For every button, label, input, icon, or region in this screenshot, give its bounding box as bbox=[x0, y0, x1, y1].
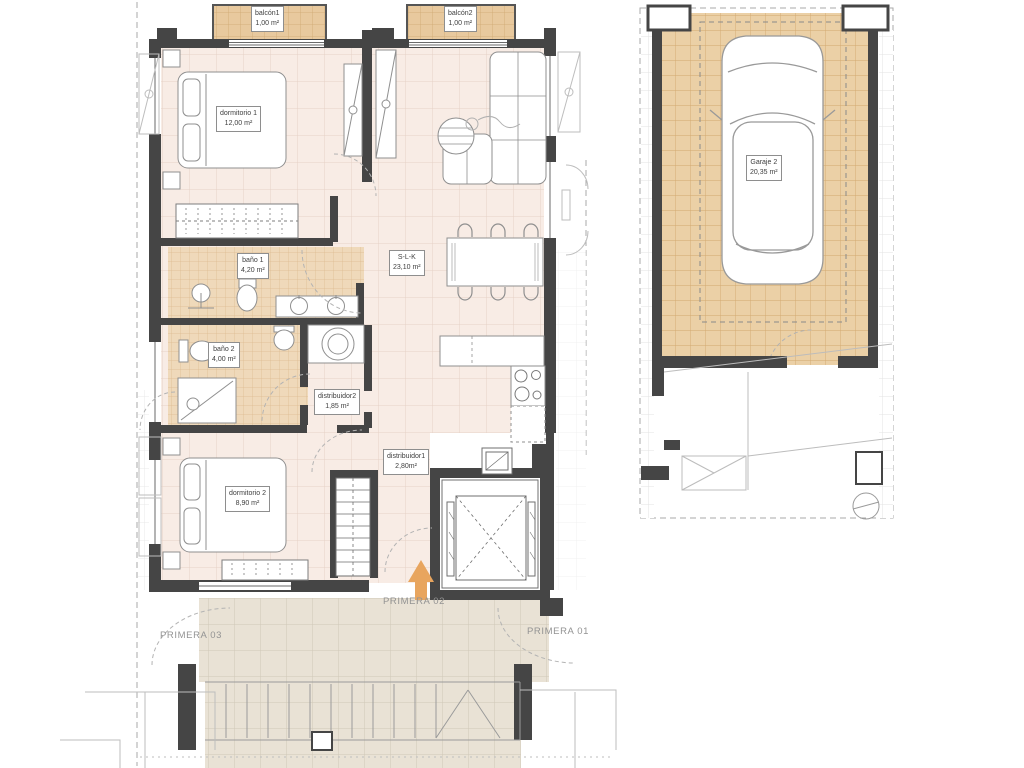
room-name: dormitorio 1 bbox=[220, 109, 257, 119]
room-area: 4,20 m² bbox=[241, 266, 265, 276]
room-name: baño 2 bbox=[212, 345, 236, 355]
room-label-dormitorio2: dormitorio 2 8,90 m² bbox=[225, 486, 270, 512]
room-name: balcón2 bbox=[448, 9, 473, 19]
room-name: baño 1 bbox=[241, 256, 265, 266]
washbasin2-icon bbox=[274, 326, 294, 350]
room-area: 1,00 m² bbox=[448, 19, 473, 29]
shower-icon bbox=[178, 378, 236, 423]
dining-table-icon bbox=[447, 238, 543, 286]
room-label-bano1: baño 1 4,20 m² bbox=[237, 253, 269, 279]
terrace-post bbox=[312, 732, 332, 750]
room-name: dormitorio 2 bbox=[229, 489, 266, 499]
room-label-balcon1: balcón1 1,00 m² bbox=[251, 6, 284, 32]
wardrobe1-icon bbox=[176, 204, 298, 238]
toilet1-icon bbox=[237, 279, 257, 311]
plan-linework bbox=[0, 0, 1024, 768]
room-name: distribuidor2 bbox=[318, 392, 356, 402]
room-name: Garaje 2 bbox=[750, 158, 778, 168]
room-label-distribuidor1: distribuidor1 2,80m² bbox=[383, 449, 429, 475]
room-area: 2,80m² bbox=[387, 462, 425, 472]
terrace-floor bbox=[199, 598, 549, 682]
room-name: balcón1 bbox=[255, 9, 280, 19]
room-label-dormitorio1: dormitorio 1 12,00 m² bbox=[216, 106, 261, 132]
room-label-garaje2: Garaje 2 20,35 m² bbox=[746, 155, 782, 181]
floorplan-sheet: balcón1 1,00 m² balcón2 1,00 m² dormitor… bbox=[0, 0, 1024, 768]
room-area: 1,85 m² bbox=[318, 402, 356, 412]
vanity-sinks-icon bbox=[276, 295, 358, 317]
room-name: distribuidor1 bbox=[387, 452, 425, 462]
washing-machine-icon bbox=[308, 325, 364, 363]
stairs-icon bbox=[336, 478, 370, 576]
room-area: 1,00 m² bbox=[255, 19, 280, 29]
room-label-slk: S-L-K 23,10 m² bbox=[389, 250, 425, 276]
north-circle-icon bbox=[853, 493, 879, 519]
room-label-bano2: baño 2 4,00 m² bbox=[208, 342, 240, 368]
level-label-primera01: PRIMERA 01 bbox=[527, 626, 589, 637]
room-area: 23,10 m² bbox=[393, 263, 421, 273]
room-area: 8,90 m² bbox=[229, 499, 266, 509]
room-area: 4,00 m² bbox=[212, 355, 236, 365]
room-label-balcon2: balcón2 1,00 m² bbox=[444, 6, 477, 32]
level-label-primera03: PRIMERA 03 bbox=[160, 630, 222, 641]
wardrobe2-icon bbox=[222, 560, 308, 580]
room-area: 12,00 m² bbox=[220, 119, 257, 129]
room-area: 20,35 m² bbox=[750, 168, 778, 178]
coffee-table-icon bbox=[438, 118, 474, 154]
room-label-distribuidor2: distribuidor2 1,85 m² bbox=[314, 389, 360, 415]
level-label-primera02: PRIMERA 02 bbox=[383, 596, 445, 607]
terrace-stairs-floor bbox=[205, 682, 521, 768]
room-name: S-L-K bbox=[393, 253, 421, 263]
